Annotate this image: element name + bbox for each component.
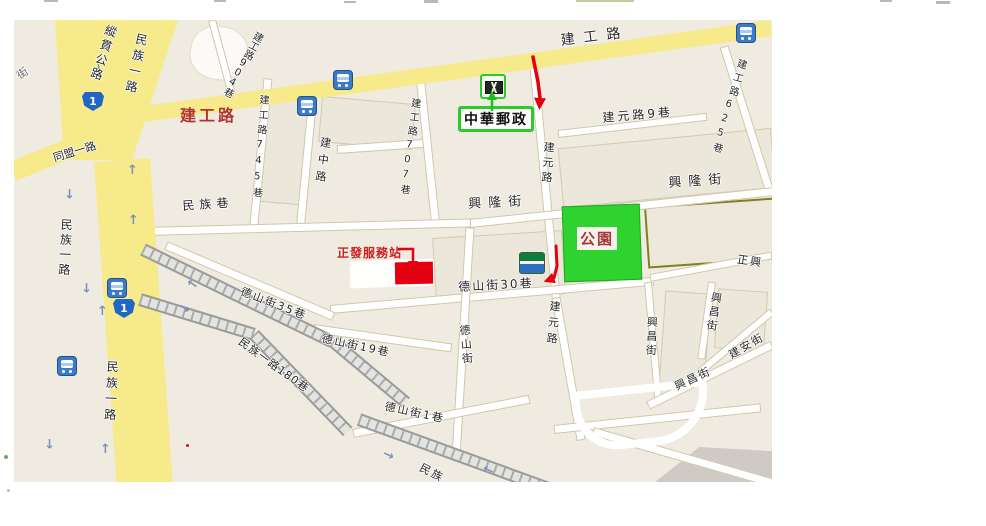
stray-dot [186, 444, 189, 447]
edge-artifact-mark [576, 0, 634, 2]
red-arrow-elbow-head [408, 261, 418, 271]
edge-artifact-mark [44, 0, 58, 2]
edge-artifact-mark [344, 1, 356, 3]
red-arrow-post [533, 57, 540, 98]
map-canvas: 中華郵政 正發服務站 公園 建工路 建工路縱貫公路民族一路民族一路民族一路同盟一… [0, 0, 986, 526]
annotation-arrows [14, 20, 772, 482]
red-arrow-elbow [399, 249, 413, 261]
edge-artifact-mark [880, 0, 892, 2]
edge-artifact-mark [424, 0, 438, 3]
edge-artifact-mark [214, 0, 226, 2]
red-arrow-store [554, 246, 557, 278]
edge-artifact-mark [936, 1, 950, 4]
red-arrow-post-head [534, 98, 546, 110]
green-arrow-up-head [487, 91, 497, 100]
stray-dot [7, 489, 10, 492]
stray-dot [4, 455, 8, 459]
map-image: 中華郵政 正發服務站 公園 建工路 建工路縱貫公路民族一路民族一路民族一路同盟一… [14, 20, 772, 482]
